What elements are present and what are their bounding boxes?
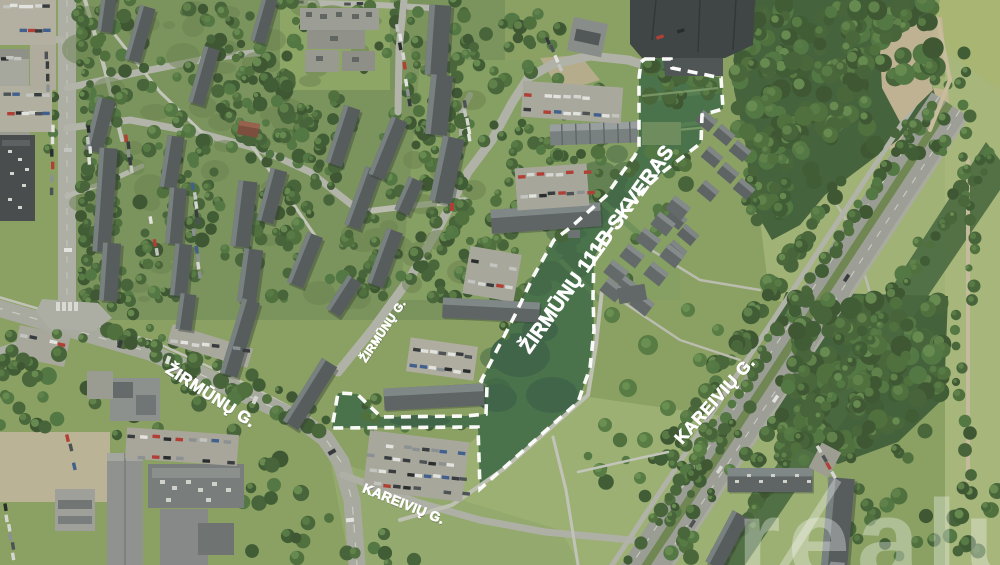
svg-text:realu: realu (737, 477, 1000, 565)
